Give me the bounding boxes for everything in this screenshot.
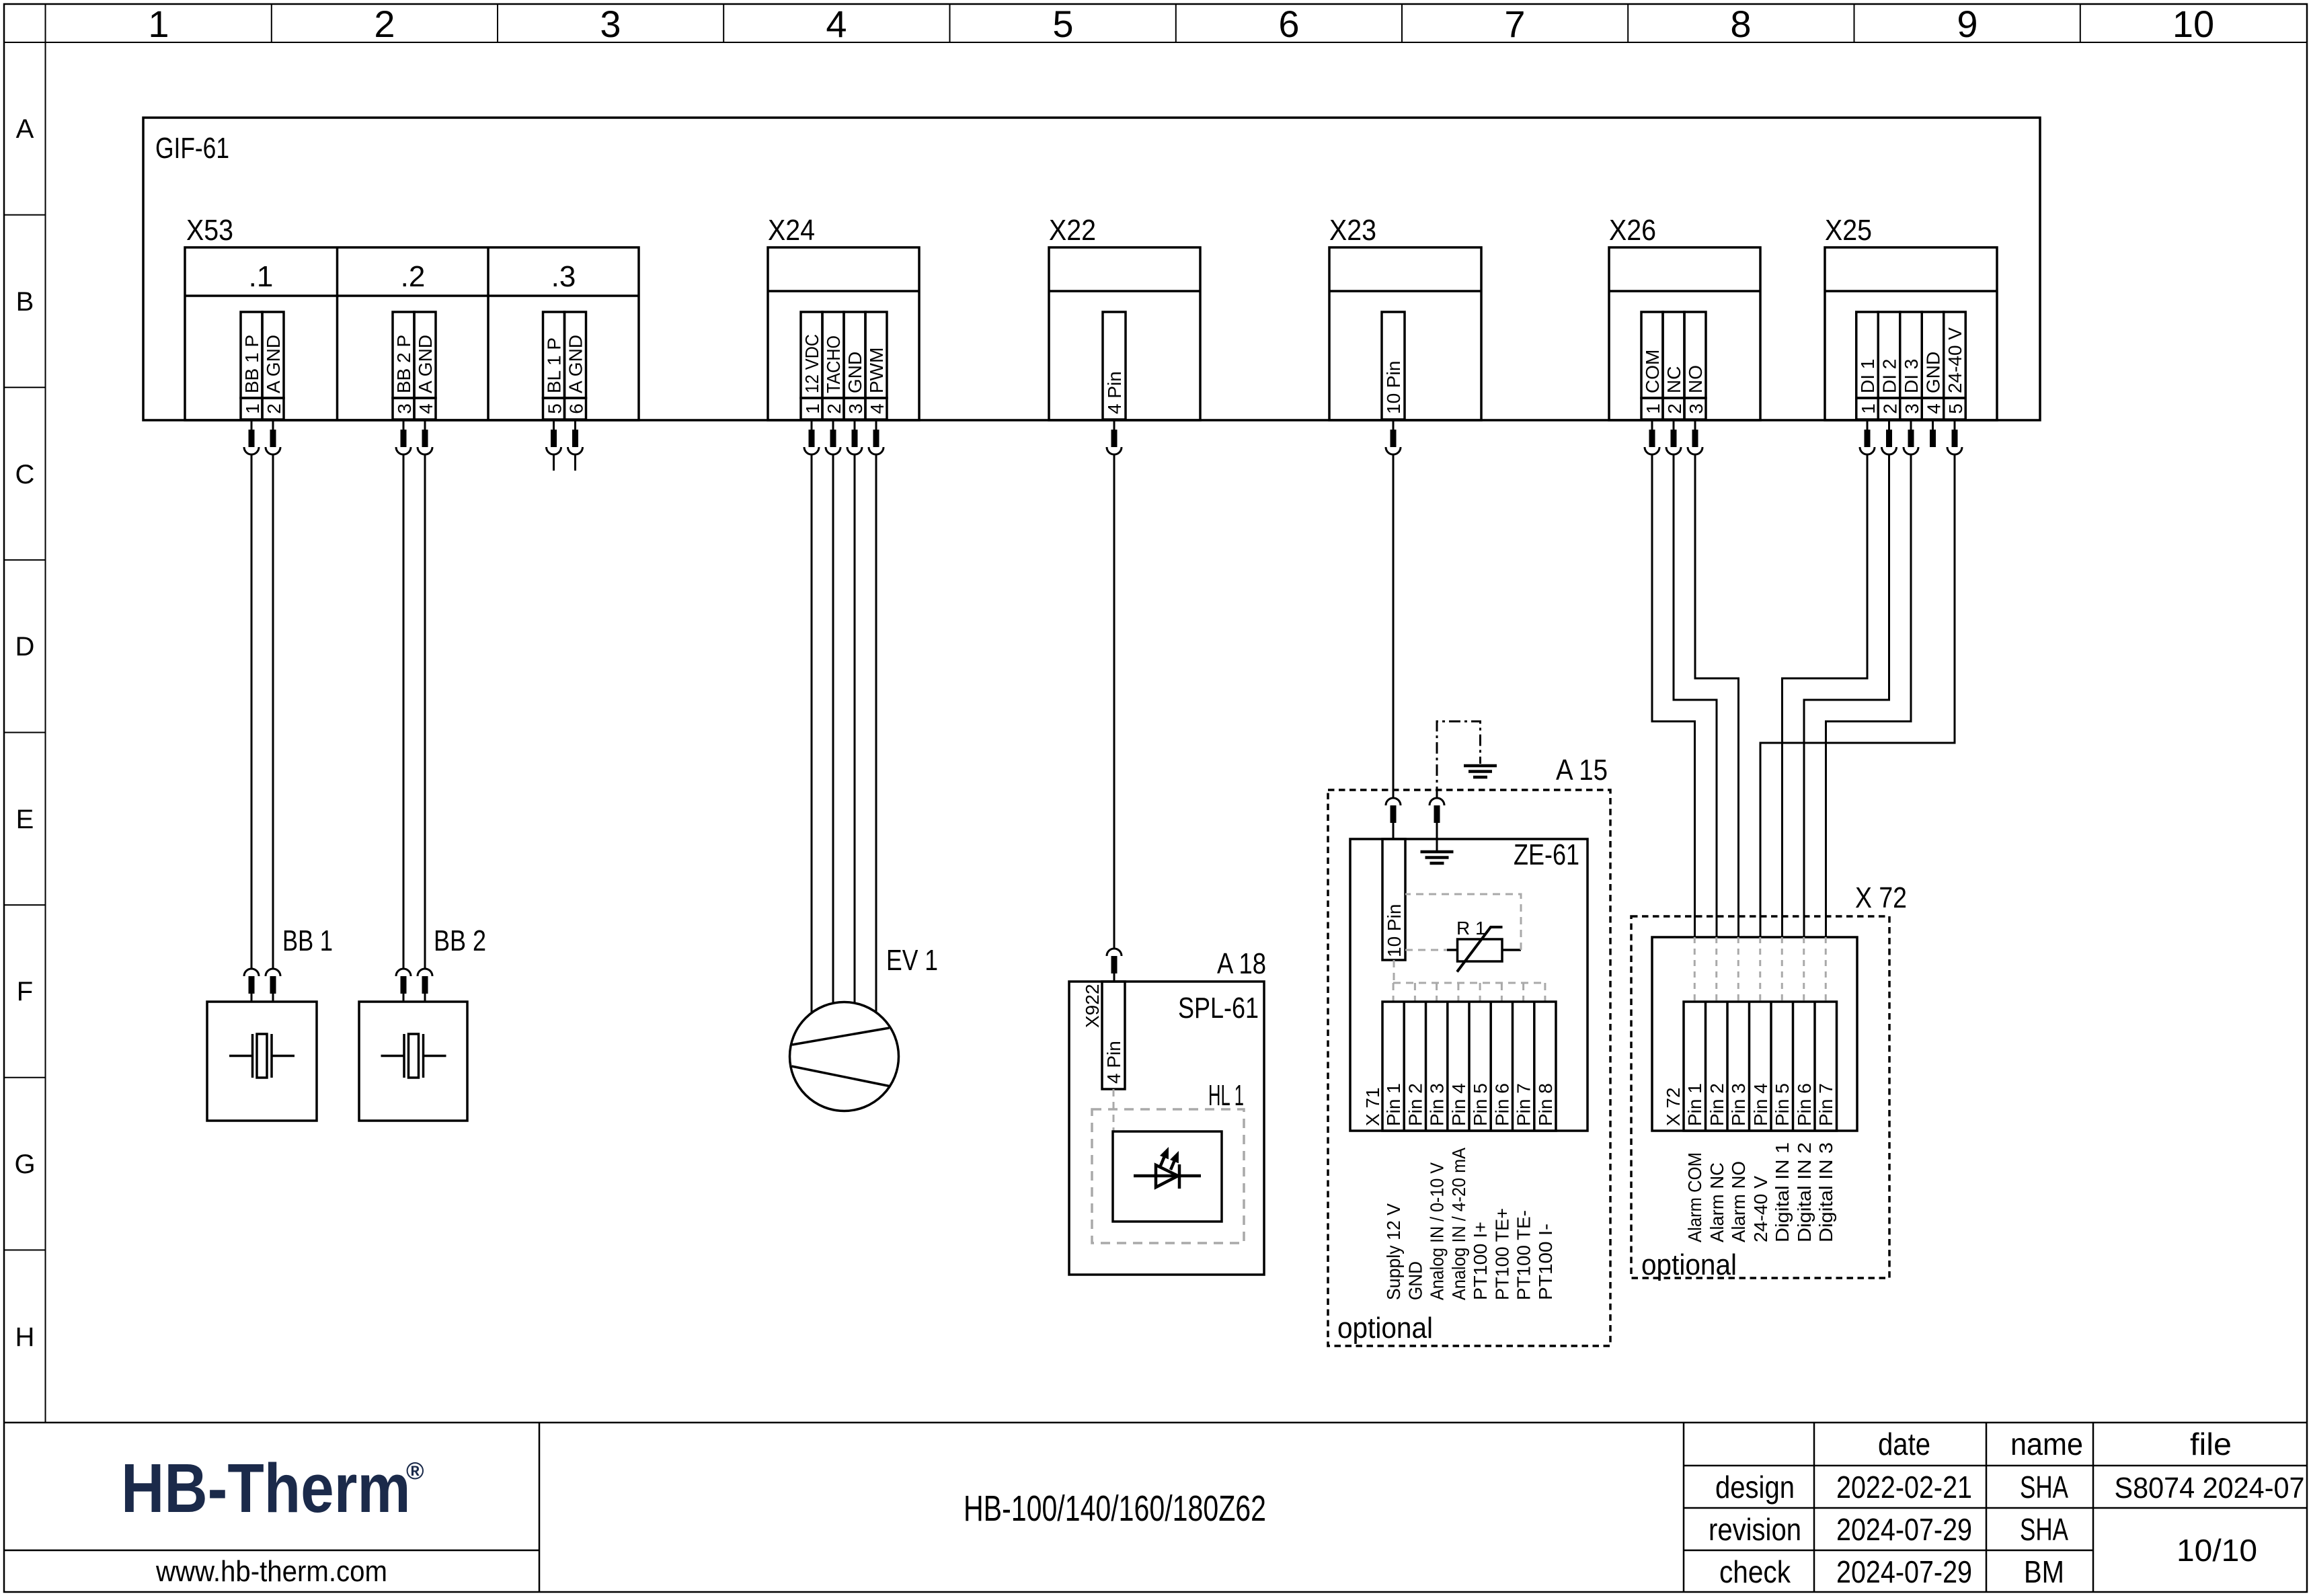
svg-text:DI 1: DI 1 [1857,359,1878,393]
svg-text:2: 2 [1880,403,1901,414]
svg-text:SHA: SHA [2020,1512,2068,1547]
svg-text:1: 1 [148,3,169,45]
svg-text:X 72: X 72 [1663,1087,1684,1126]
svg-text:DI 2: DI 2 [1879,359,1900,393]
svg-text:R 1: R 1 [1456,918,1486,939]
svg-text:NC: NC [1663,366,1684,393]
svg-text:6: 6 [566,403,587,414]
svg-text:Pin 6: Pin 6 [1794,1083,1815,1126]
svg-text:Pin 1: Pin 1 [1383,1083,1404,1126]
svg-text:Pin 2: Pin 2 [1405,1083,1425,1126]
svg-text:24-40 V: 24-40 V [1945,327,1965,393]
svg-text:5: 5 [1945,403,1966,414]
svg-text:Digital IN 3: Digital IN 3 [1815,1142,1836,1242]
svg-text:A 18: A 18 [1217,947,1266,980]
svg-text:www.hb-therm.com: www.hb-therm.com [155,1555,387,1588]
svg-text:A: A [16,114,34,144]
svg-text:Analog IN / 4-20 mA: Analog IN / 4-20 mA [1448,1148,1469,1300]
svg-text:5: 5 [545,403,565,414]
svg-text:name: name [2010,1427,2083,1462]
svg-text:1: 1 [242,403,263,414]
svg-text:Digital IN 1: Digital IN 1 [1772,1142,1793,1242]
svg-text:BB 2 P: BB 2 P [393,335,414,393]
svg-text:Digital IN 2: Digital IN 2 [1794,1142,1815,1242]
svg-text:HB-100/140/160/180Z62: HB-100/140/160/180Z62 [964,1488,1266,1529]
svg-text:4: 4 [1924,403,1945,414]
svg-text:X 72: X 72 [1855,881,1907,914]
svg-text:10 Pin: 10 Pin [1384,904,1405,957]
svg-text:A GND: A GND [415,335,436,393]
svg-text:HL 1: HL 1 [1208,1079,1244,1112]
svg-text:GND: GND [1923,352,1944,393]
svg-text:BL 1 P: BL 1 P [544,337,565,393]
svg-text:F: F [17,977,33,1006]
svg-text:Alarm COM: Alarm COM [1684,1152,1705,1242]
svg-text:10: 10 [2172,3,2214,45]
svg-text:4 Pin: 4 Pin [1104,371,1125,414]
svg-text:A GND: A GND [263,335,284,393]
svg-text:C: C [15,460,35,489]
svg-text:GIF-61: GIF-61 [155,132,229,165]
svg-text:file: file [2190,1427,2232,1462]
svg-text:10 Pin: 10 Pin [1383,361,1404,414]
svg-text:®: ® [406,1457,424,1484]
svg-text:EV 1: EV 1 [886,944,938,977]
svg-text:revision: revision [1709,1512,1801,1547]
svg-text:PT100 TE-: PT100 TE- [1514,1210,1534,1300]
svg-text:Pin 3: Pin 3 [1427,1083,1448,1126]
svg-text:COM: COM [1642,350,1663,393]
svg-text:SPL-61: SPL-61 [1178,992,1259,1025]
svg-text:S8074 2024-07: S8074 2024-07 [2115,1472,2305,1505]
svg-text:optional: optional [1641,1248,1737,1281]
svg-text:8: 8 [1730,3,1751,45]
svg-text:12 VDC: 12 VDC [801,334,822,393]
svg-text:7: 7 [1504,3,1525,45]
svg-text:X 71: X 71 [1362,1087,1383,1126]
svg-text:4: 4 [826,3,847,45]
svg-text:Analog IN / 0-10 V: Analog IN / 0-10 V [1427,1162,1448,1300]
svg-text:HB-Therm: HB-Therm [121,1450,411,1527]
svg-text:A 15: A 15 [1556,754,1608,787]
svg-text:Pin 2: Pin 2 [1707,1083,1727,1126]
svg-text:PT100 TE+: PT100 TE+ [1491,1208,1512,1300]
svg-text:X26: X26 [1609,214,1656,247]
svg-text:D: D [15,632,35,662]
svg-text:Pin 6: Pin 6 [1491,1083,1512,1126]
svg-text:5: 5 [1052,3,1073,45]
svg-text:Pin 8: Pin 8 [1535,1083,1556,1126]
svg-text:1: 1 [802,403,823,414]
svg-text:6: 6 [1278,3,1299,45]
svg-text:2: 2 [1664,403,1685,414]
svg-text:Pin 3: Pin 3 [1728,1083,1749,1126]
svg-text:2: 2 [374,3,395,45]
svg-text:ZE-61: ZE-61 [1514,838,1579,871]
svg-text:DI 3: DI 3 [1901,359,1922,393]
svg-text:1: 1 [1643,403,1663,414]
svg-text:.1: .1 [249,260,274,293]
svg-text:4: 4 [867,403,888,414]
svg-text:Pin 5: Pin 5 [1772,1083,1793,1126]
svg-text:X23: X23 [1329,214,1376,247]
svg-text:10/10: 10/10 [2177,1533,2257,1568]
svg-text:GND: GND [1405,1261,1425,1300]
svg-text:3: 3 [600,3,621,45]
svg-text:PWM: PWM [866,348,887,393]
svg-text:Alarm NC: Alarm NC [1707,1162,1727,1242]
svg-text:NO: NO [1685,365,1706,393]
svg-text:2024-07-29: 2024-07-29 [1836,1512,1972,1547]
svg-text:2022-02-21: 2022-02-21 [1836,1470,1972,1505]
svg-text:3: 3 [1902,403,1922,414]
svg-text:X24: X24 [768,214,815,247]
svg-text:4: 4 [416,403,436,414]
svg-text:A GND: A GND [565,335,586,393]
svg-text:9: 9 [1957,3,1977,45]
svg-text:BB 2: BB 2 [434,924,486,957]
svg-text:B: B [16,287,34,317]
svg-text:.2: .2 [401,260,426,293]
svg-text:Alarm NO: Alarm NO [1728,1161,1749,1242]
svg-text:PT100 I-: PT100 I- [1535,1224,1556,1300]
svg-text:2: 2 [264,403,284,414]
svg-text:BB 1 P: BB 1 P [241,335,262,393]
svg-text:H: H [15,1322,35,1352]
svg-text:3: 3 [845,403,866,414]
svg-text:X922: X922 [1082,984,1103,1028]
svg-text:X53: X53 [186,214,233,247]
svg-text:Supply 12 V: Supply 12 V [1383,1203,1404,1300]
svg-text:Pin 1: Pin 1 [1684,1083,1705,1126]
svg-text:Pin 7: Pin 7 [1815,1083,1836,1126]
svg-text:SHA: SHA [2020,1470,2068,1505]
svg-text:optional: optional [1337,1312,1433,1345]
svg-text:date: date [1878,1427,1930,1462]
svg-text:BM: BM [2024,1554,2064,1589]
svg-text:1: 1 [1858,403,1879,414]
svg-text:3: 3 [1686,403,1707,414]
svg-text:check: check [1719,1554,1791,1589]
svg-text:design: design [1715,1470,1795,1505]
svg-text:.3: .3 [551,260,576,293]
svg-text:Pin 4: Pin 4 [1448,1083,1469,1126]
svg-text:E: E [16,805,34,834]
svg-text:Pin 7: Pin 7 [1514,1083,1534,1126]
svg-text:PT100 I+: PT100 I+ [1470,1222,1491,1300]
svg-text:X25: X25 [1825,214,1872,247]
svg-text:G: G [14,1150,35,1179]
svg-text:2024-07-29: 2024-07-29 [1836,1554,1972,1589]
svg-text:Pin 4: Pin 4 [1750,1083,1771,1126]
svg-text:BB 1: BB 1 [282,924,333,957]
svg-text:2: 2 [824,403,845,414]
svg-text:3: 3 [394,403,415,414]
svg-text:TACHO: TACHO [823,335,844,393]
svg-text:24-40 V: 24-40 V [1750,1176,1771,1242]
svg-text:4 Pin: 4 Pin [1103,1041,1124,1084]
svg-text:Pin 5: Pin 5 [1470,1083,1491,1126]
svg-text:X22: X22 [1049,214,1096,247]
svg-text:GND: GND [845,352,865,393]
